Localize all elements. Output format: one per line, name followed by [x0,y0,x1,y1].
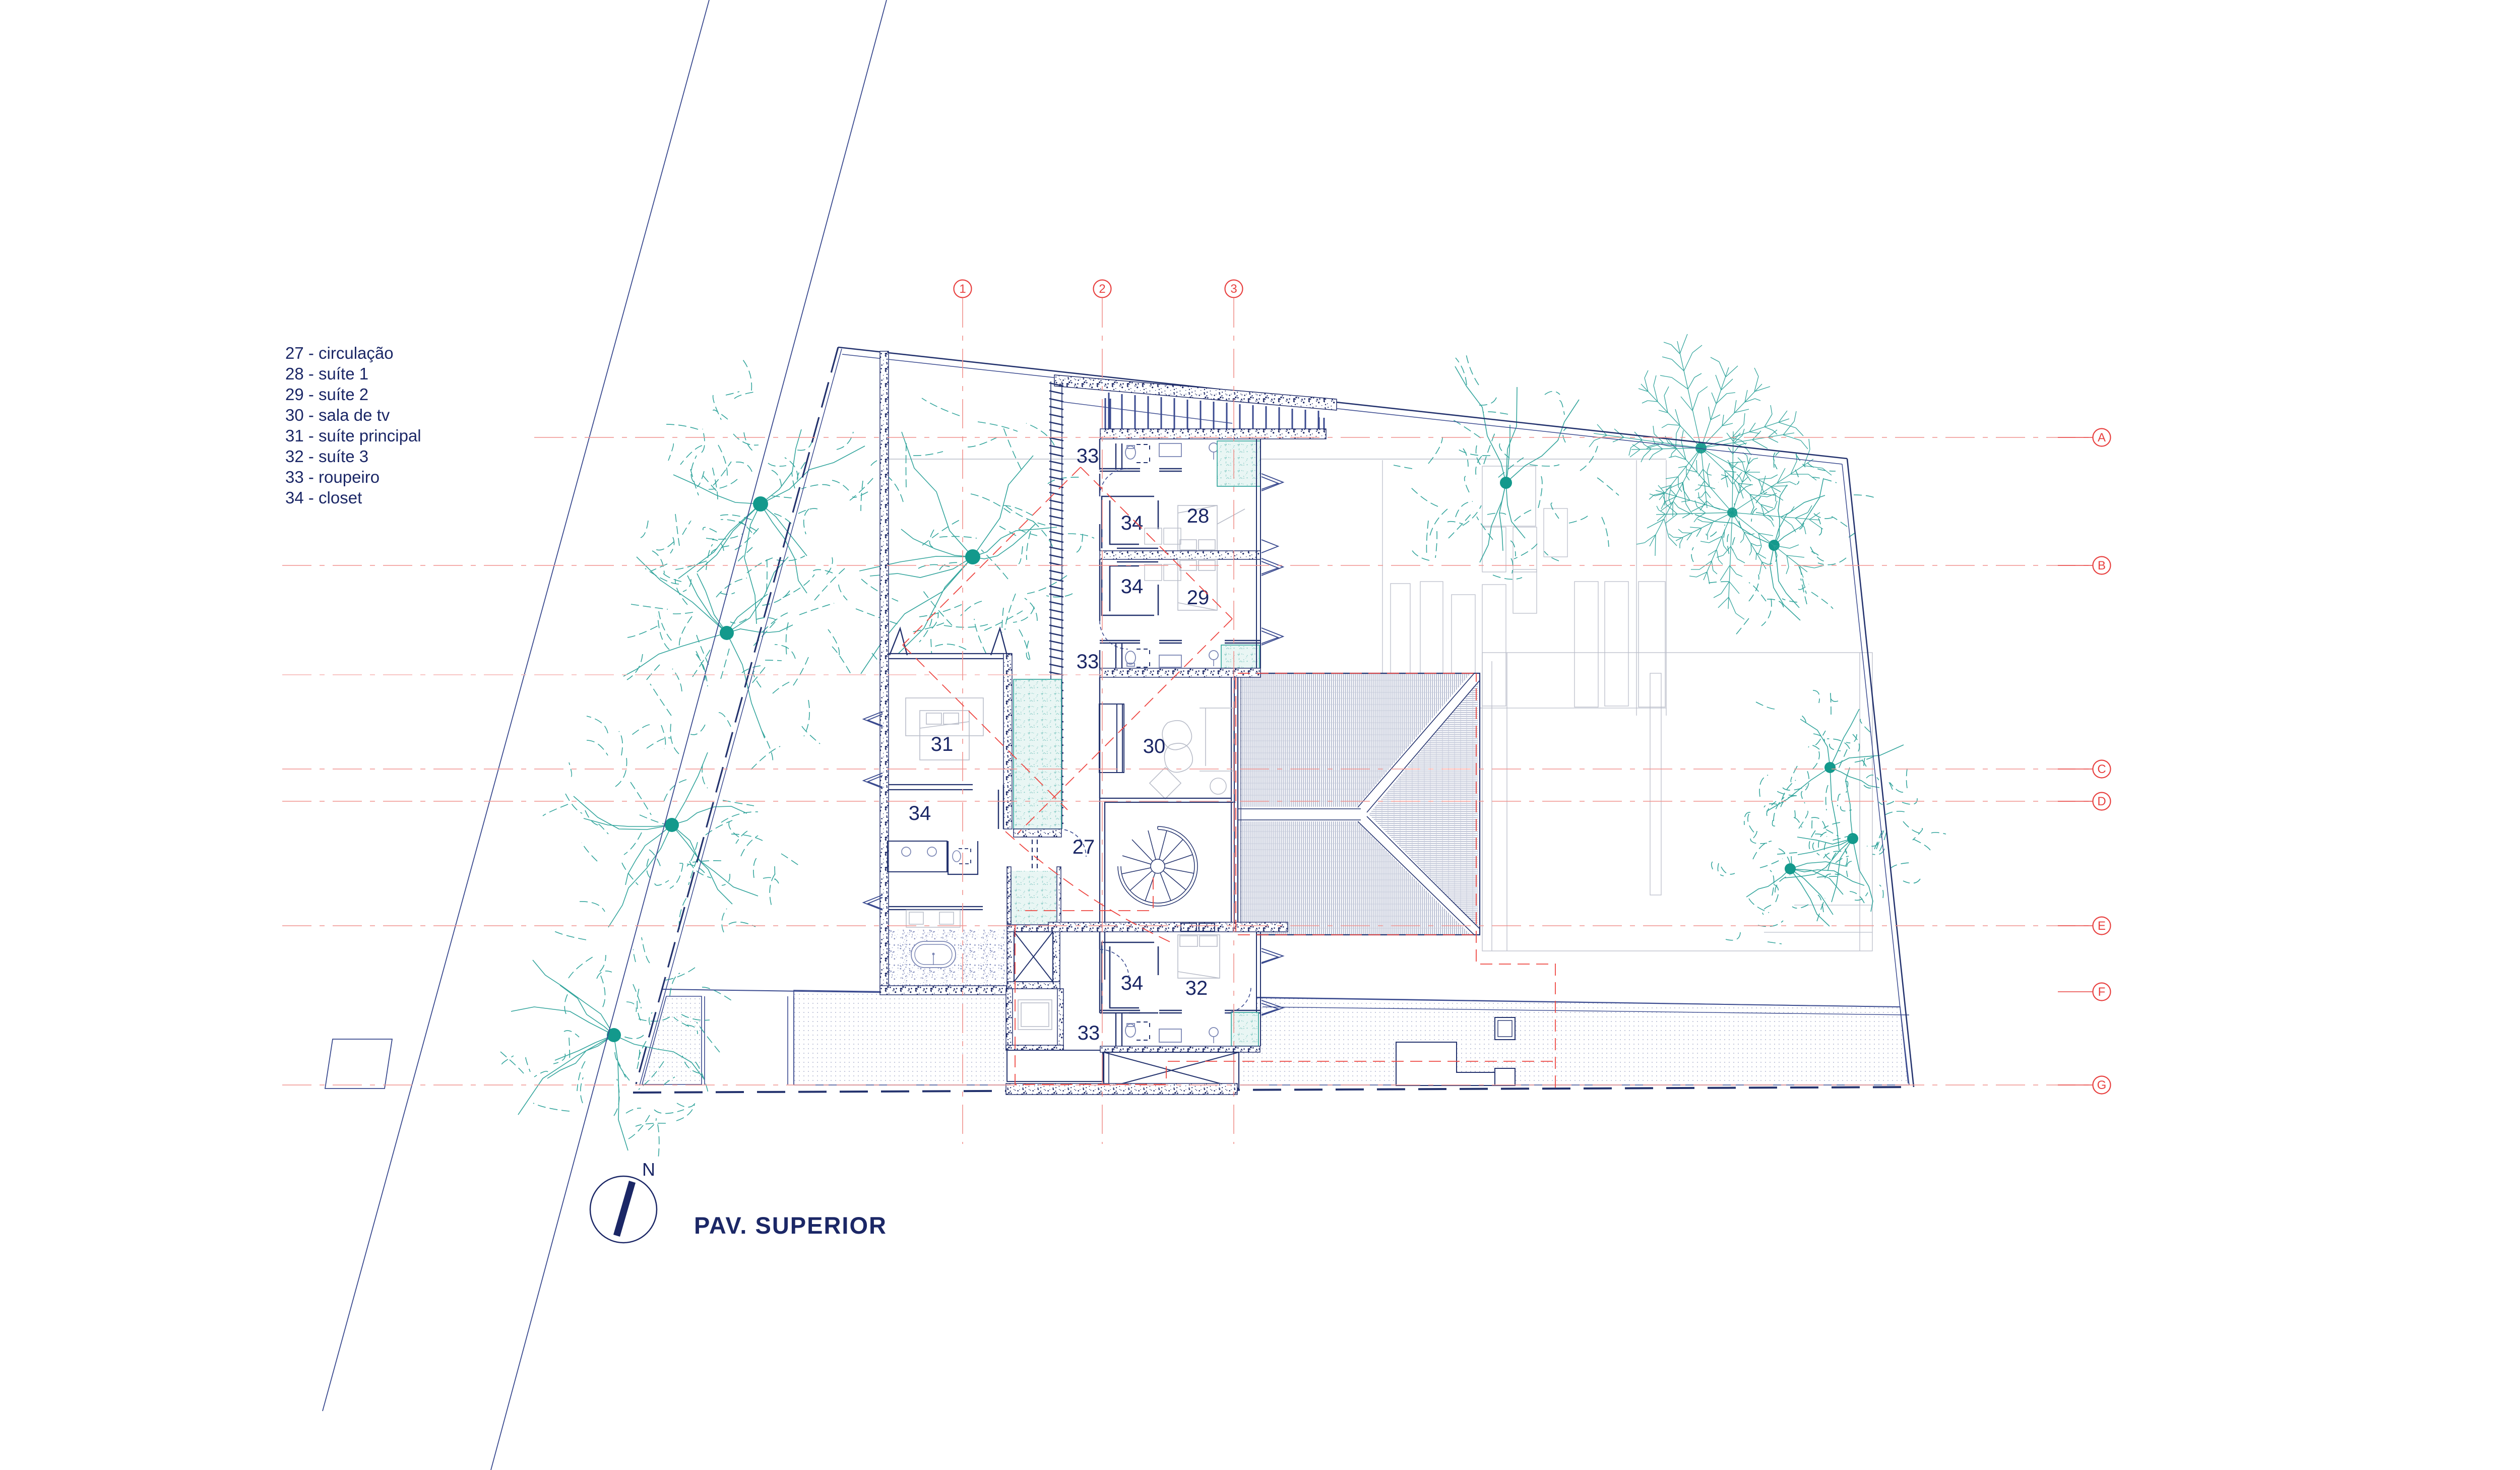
svg-text:34: 34 [909,802,931,824]
svg-text:33: 33 [1077,445,1099,467]
svg-text:33 - roupeiro: 33 - roupeiro [285,468,380,486]
svg-text:29 - suíte 2: 29 - suíte 2 [285,385,368,404]
svg-text:32 - suíte 3: 32 - suíte 3 [285,447,368,466]
svg-text:34 - closet: 34 - closet [285,488,362,507]
svg-text:A: A [2098,431,2106,444]
svg-text:32: 32 [1185,977,1208,999]
svg-text:30: 30 [1143,735,1166,757]
svg-text:D: D [2097,795,2106,808]
svg-text:28: 28 [1187,505,1210,527]
svg-text:34: 34 [1121,972,1144,994]
svg-text:31 - suíte principal: 31 - suíte principal [285,426,421,445]
svg-text:E: E [2098,919,2106,933]
svg-text:1: 1 [959,282,966,296]
svg-text:PAV. SUPERIOR: PAV. SUPERIOR [694,1212,887,1239]
svg-text:27: 27 [1073,836,1095,858]
svg-text:2: 2 [1099,282,1105,296]
svg-text:30 - sala de tv: 30 - sala de tv [285,406,390,424]
svg-text:28 - suíte 1: 28 - suíte 1 [285,364,368,383]
svg-text:C: C [2097,762,2106,776]
svg-text:G: G [2097,1078,2107,1092]
svg-text:31: 31 [931,733,954,755]
svg-text:3: 3 [1230,282,1237,296]
svg-text:27 - circulação: 27 - circulação [285,344,394,362]
svg-text:34: 34 [1121,512,1144,534]
svg-text:B: B [2098,559,2106,572]
svg-text:N: N [642,1159,655,1180]
svg-text:34: 34 [1121,576,1144,598]
svg-text:33: 33 [1078,1022,1100,1044]
svg-text:F: F [2098,985,2106,999]
svg-text:29: 29 [1187,587,1210,609]
svg-text:33: 33 [1077,651,1099,673]
